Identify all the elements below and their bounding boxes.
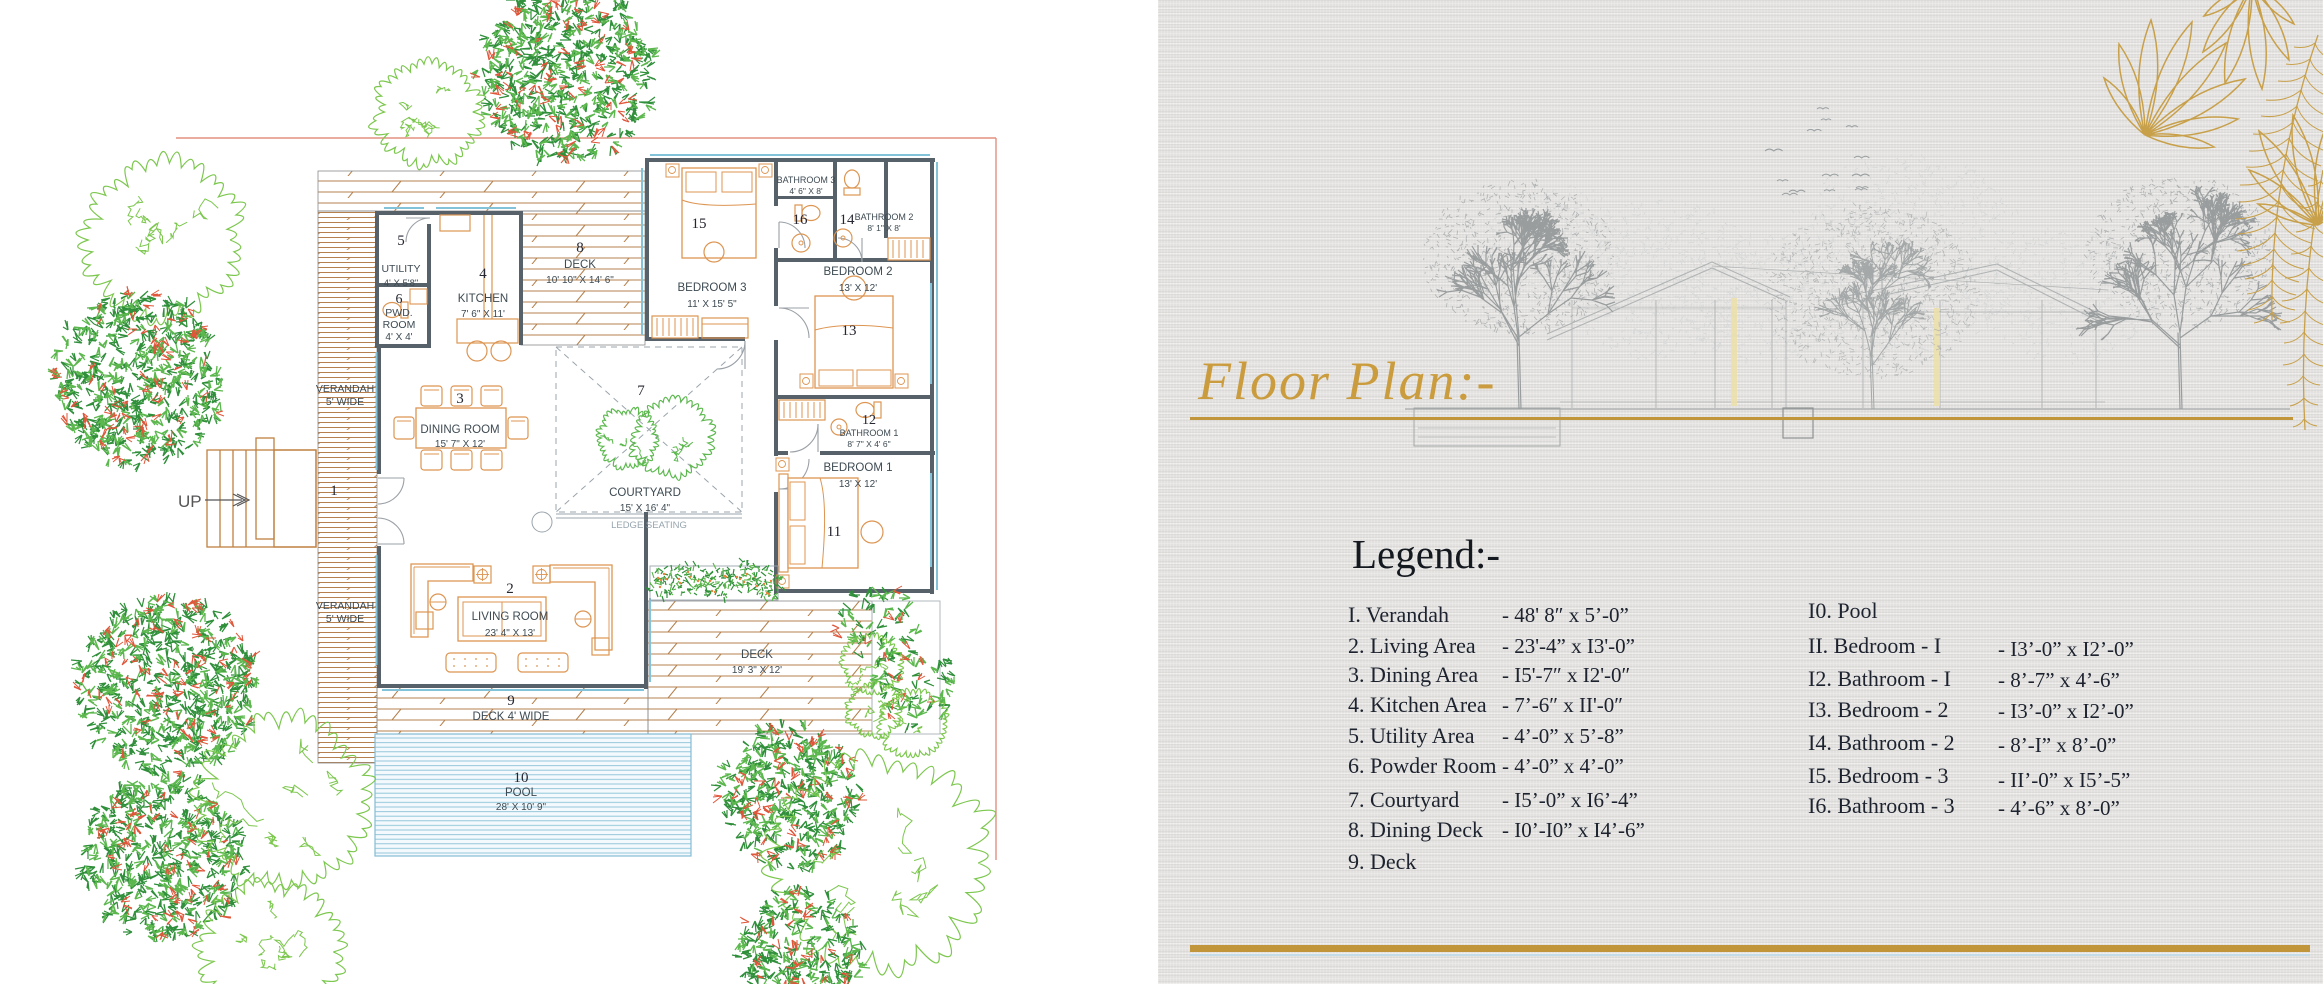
- svg-text:8: 8: [576, 240, 584, 256]
- svg-text:LIVING ROOM: LIVING ROOM: [472, 611, 549, 623]
- svg-text:4' X 5'8": 4' X 5'8": [384, 278, 418, 289]
- svg-text:UP: UP: [178, 492, 202, 511]
- svg-text:28' X 10' 9": 28' X 10' 9": [496, 802, 547, 813]
- svg-text:DECK: DECK: [741, 649, 773, 661]
- svg-text:8' 7" X 4' 6": 8' 7" X 4' 6": [847, 439, 890, 449]
- svg-text:COURTYARD: COURTYARD: [609, 487, 681, 499]
- svg-text:DINING ROOM: DINING ROOM: [420, 424, 499, 436]
- svg-text:BATHROOM 1: BATHROOM 1: [840, 428, 899, 438]
- svg-text:7: 7: [637, 383, 645, 399]
- svg-text:23' 4" X 13': 23' 4" X 13': [485, 628, 535, 639]
- svg-text:14: 14: [840, 212, 856, 228]
- svg-text:15' X 16' 4": 15' X 16' 4": [620, 503, 671, 514]
- svg-text:9: 9: [507, 693, 515, 709]
- svg-text:VERANDAH: VERANDAH: [316, 600, 374, 612]
- svg-text:BATHROOM 2: BATHROOM 2: [855, 212, 914, 222]
- svg-text:DECK 4' WIDE: DECK 4' WIDE: [473, 711, 550, 723]
- svg-text:POOL: POOL: [505, 787, 538, 799]
- svg-text:4: 4: [479, 266, 487, 282]
- svg-text:BEDROOM 3: BEDROOM 3: [677, 282, 746, 294]
- svg-text:7' 6" X 11': 7' 6" X 11': [461, 309, 505, 320]
- svg-text:8' 1" X 8': 8' 1" X 8': [867, 223, 901, 233]
- svg-text:11: 11: [827, 524, 841, 540]
- svg-text:BEDROOM 2: BEDROOM 2: [823, 266, 892, 278]
- svg-text:15' 7" X 12': 15' 7" X 12': [435, 439, 485, 450]
- svg-text:5: 5: [397, 233, 405, 249]
- svg-text:16: 16: [793, 212, 809, 228]
- svg-text:19' 3" X 12': 19' 3" X 12': [732, 665, 782, 676]
- svg-text:13' X 12': 13' X 12': [839, 479, 877, 490]
- svg-text:BEDROOM 1: BEDROOM 1: [823, 462, 892, 474]
- svg-text:4' X 4': 4' X 4': [385, 332, 412, 343]
- svg-text:KITCHEN: KITCHEN: [458, 293, 508, 305]
- svg-text:12: 12: [862, 413, 876, 428]
- svg-text:ROOM: ROOM: [383, 319, 416, 331]
- svg-text:13: 13: [842, 323, 857, 339]
- svg-text:LEDGE SEATING: LEDGE SEATING: [611, 520, 687, 531]
- svg-text:2: 2: [506, 581, 514, 597]
- svg-text:15: 15: [692, 216, 707, 232]
- svg-text:Floor Plan:-: Floor Plan:-: [1197, 351, 1496, 411]
- svg-text:PWD.: PWD.: [385, 307, 412, 319]
- svg-text:11' X 15' 5": 11' X 15' 5": [687, 299, 737, 310]
- svg-text:3: 3: [456, 391, 464, 407]
- svg-text:13' X 12': 13' X 12': [839, 283, 877, 294]
- svg-text:BATHROOM 3: BATHROOM 3: [777, 175, 836, 185]
- svg-text:UTILITY: UTILITY: [381, 263, 420, 275]
- svg-text:4' 6" X 8': 4' 6" X 8': [789, 186, 823, 196]
- svg-text:10' 10" X 14' 6": 10' 10" X 14' 6": [546, 275, 614, 286]
- svg-text:1: 1: [330, 483, 338, 499]
- svg-text:10: 10: [514, 770, 529, 786]
- svg-text:VERANDAH: VERANDAH: [316, 383, 374, 395]
- svg-text:6: 6: [396, 292, 403, 307]
- svg-text:5' WIDE: 5' WIDE: [326, 396, 364, 408]
- svg-text:DECK: DECK: [564, 259, 596, 271]
- svg-text:5' WIDE: 5' WIDE: [326, 613, 364, 625]
